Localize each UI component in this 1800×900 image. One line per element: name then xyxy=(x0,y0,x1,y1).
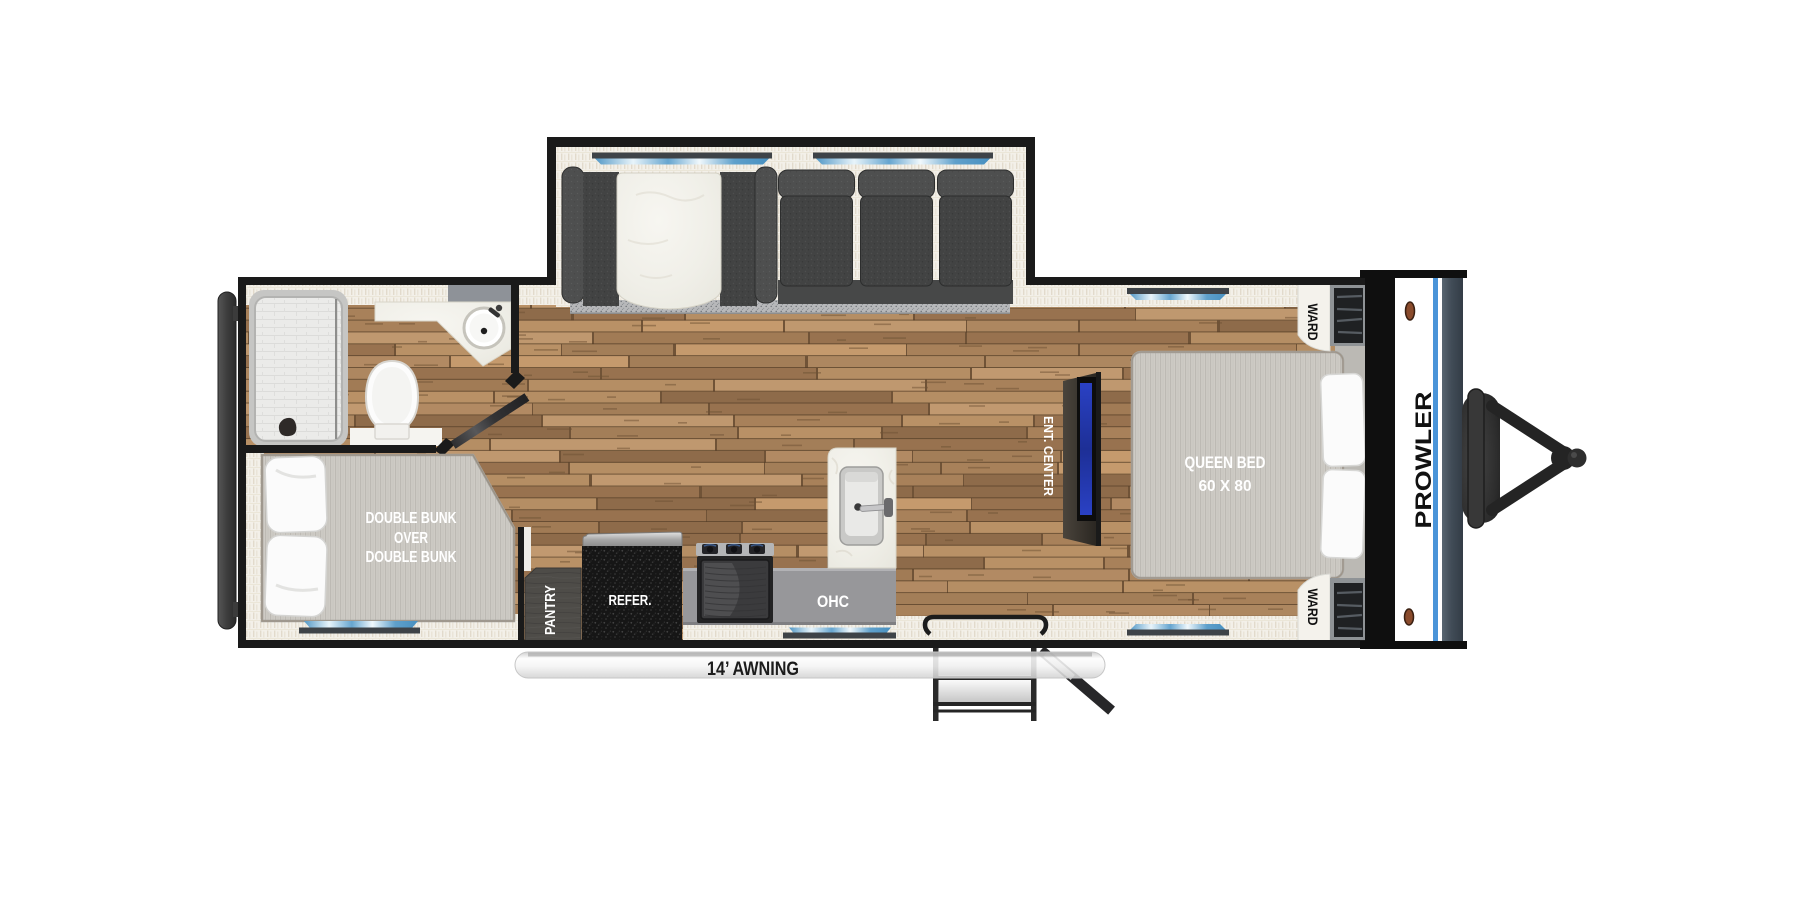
svg-text:14’ AWNING: 14’ AWNING xyxy=(707,659,799,680)
svg-text:OHC: OHC xyxy=(817,592,849,611)
svg-text:DOUBLE BUNK: DOUBLE BUNK xyxy=(366,549,457,566)
svg-text:QUEEN BED: QUEEN BED xyxy=(1185,453,1266,472)
svg-text:REFER.: REFER. xyxy=(609,592,652,609)
svg-text:60 X 80: 60 X 80 xyxy=(1199,478,1252,495)
svg-text:DOUBLE BUNK: DOUBLE BUNK xyxy=(366,510,457,527)
svg-text:PANTRY: PANTRY xyxy=(542,585,559,635)
svg-text:WARD: WARD xyxy=(1305,304,1321,341)
svg-text:ENT. CENTER: ENT. CENTER xyxy=(1041,416,1056,497)
svg-text:OVER: OVER xyxy=(394,530,428,547)
svg-text:PROWLER: PROWLER xyxy=(1411,391,1436,528)
svg-text:WARD: WARD xyxy=(1305,589,1321,626)
